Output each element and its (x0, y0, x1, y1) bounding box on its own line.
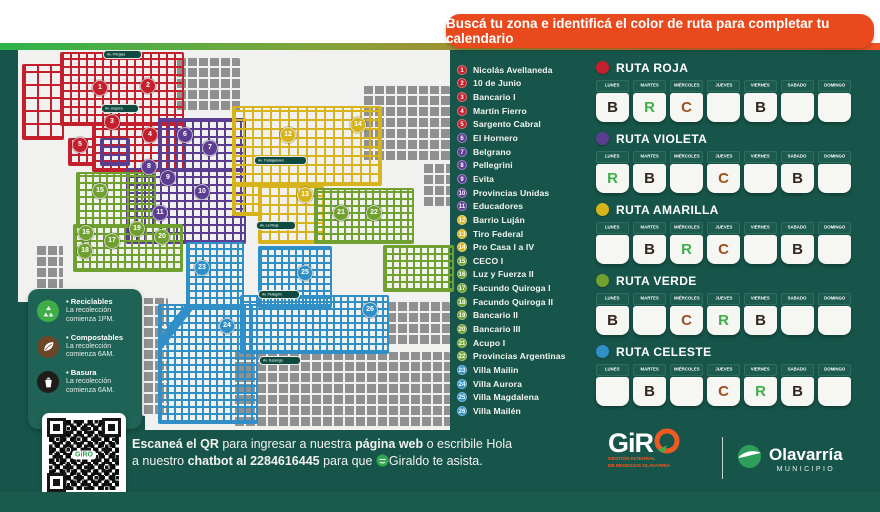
zone-number-badge: 20 (457, 324, 467, 334)
map-zone-gray (35, 245, 63, 290)
zone-name: Facundo Quiroga I (473, 283, 551, 293)
street-label: Av. Urquiza (101, 104, 139, 113)
waste-legend-item: • Compostables La recolección comienza 6… (37, 333, 134, 361)
day-header: VIERNES (744, 293, 777, 305)
map-zone-badge: 11 (152, 205, 168, 221)
zone-number-badge: 13 (457, 229, 467, 239)
day-header: MIÉRCOLES (670, 364, 703, 376)
zone-name: Martín Fierro (473, 106, 527, 116)
day-header: MARTES (633, 222, 666, 234)
zone-list-item: 24 Villa Aurora (457, 377, 566, 391)
qr-finder-icon (102, 418, 121, 437)
olavarria-logo: Olavarría MUNICIPIO (736, 443, 843, 475)
zone-name: Provincias Unidas (473, 188, 549, 198)
day-header: DOMINGO (818, 364, 851, 376)
giro-logo: GiR GESTIÓN INTEGRAL DE RESIDUOS OLAVARR… (608, 428, 712, 471)
day-letter: C (707, 164, 740, 193)
route-color-dot (596, 345, 609, 358)
day-header: VIERNES (744, 151, 777, 163)
day-header: MARTES (633, 151, 666, 163)
map-zone-badge: 19 (129, 221, 145, 237)
zone-name: Luz y Fuerza II (473, 269, 534, 279)
route-week-calendar: LUNES MARTES B MIÉRCOLES JUEVES C VIERNE… (596, 364, 864, 406)
day-cell: LUNES (596, 222, 629, 264)
flyer-root: Buscá tu zona e identificá el color de r… (0, 0, 880, 512)
zone-number-badge: 6 (457, 133, 467, 143)
day-letter (781, 306, 814, 335)
zone-number-badge: 7 (457, 147, 467, 157)
zone-name: Villa Aurora (473, 379, 522, 389)
zone-list-item: 11 Educadores (457, 199, 566, 213)
day-header: LUNES (596, 222, 629, 234)
zone-list-item: 22 Provincias Argentinas (457, 349, 566, 363)
route-title: RUTA AMARILLA (616, 203, 719, 217)
route-section: RUTA VERDE LUNES B MARTES MIÉRCOLES C JU… (596, 273, 864, 335)
zone-number-badge: 26 (457, 406, 467, 416)
map-zone-gray (175, 58, 240, 112)
day-letter (818, 93, 851, 122)
day-header: DOMINGO (818, 293, 851, 305)
zone-name: Evita (473, 174, 494, 184)
day-letter: B (596, 93, 629, 122)
zone-number-badge: 16 (457, 269, 467, 279)
street-label: Av. Trabajadores (254, 156, 307, 165)
zone-name: Villa Magdalena (473, 392, 539, 402)
map-zone-badge: 2 (140, 78, 156, 94)
route-color-dot (596, 61, 609, 74)
day-cell: MARTES R (633, 80, 666, 122)
day-letter: B (781, 235, 814, 264)
map-zone-red (60, 52, 184, 126)
day-letter: R (633, 93, 666, 122)
day-cell: JUEVES C (707, 364, 740, 406)
day-header: VIERNES (744, 222, 777, 234)
day-cell: DOMINGO (818, 80, 851, 122)
zone-list-item: 26 Villa Mailén (457, 404, 566, 418)
map-zone-gray (385, 302, 450, 346)
route-title: RUTA VERDE (616, 274, 697, 288)
map-zone-badge: 14 (350, 117, 366, 133)
map-zone-badge: 25 (297, 265, 313, 281)
day-letter (596, 235, 629, 264)
zone-number-badge: 2 (457, 78, 467, 88)
zone-list-item: 18 Facundo Quiroga II (457, 295, 566, 309)
day-cell: LUNES B (596, 80, 629, 122)
route-section: RUTA VIOLETA LUNES R MARTES B MIÉRCOLES … (596, 131, 864, 193)
waste-title: • Reciclables (66, 297, 128, 306)
street-label: Av. Ituzaingó (259, 356, 301, 365)
zone-list-item: 17 Facundo Quiroga I (457, 281, 566, 295)
day-cell: VIERNES B (744, 80, 777, 122)
street-label: Av. Pringles (103, 50, 142, 59)
zone-name: 10 de Junio (473, 78, 521, 88)
waste-desc: La recolección comienza 6AM. (66, 343, 128, 361)
map-zone-badge: 20 (154, 229, 170, 245)
day-cell: MARTES B (633, 364, 666, 406)
olavarria-sub: MUNICIPIO (769, 466, 843, 473)
qr-code: GiRO (42, 413, 126, 497)
day-cell: SÁBADO (781, 293, 814, 335)
zone-name: Sargento Cabral (473, 119, 541, 129)
map-zone-badge: 16 (78, 225, 94, 241)
day-cell: SÁBADO B (781, 151, 814, 193)
zone-number-badge: 5 (457, 119, 467, 129)
route-week-calendar: LUNES MARTES B MIÉRCOLES R JUEVES C VIER… (596, 222, 864, 264)
waste-title: • Basura (66, 368, 128, 377)
zone-number-badge: 24 (457, 379, 467, 389)
day-cell: DOMINGO (818, 151, 851, 193)
top-banner: Buscá tu zona e identificá el color de r… (446, 14, 874, 48)
day-header: MIÉRCOLES (670, 80, 703, 92)
zone-list-item: 8 Pellegrini (457, 158, 566, 172)
zone-name: Pellegrini (473, 160, 513, 170)
day-cell: JUEVES (707, 80, 740, 122)
zone-list-item: 9 Evita (457, 172, 566, 186)
waste-desc: La recolección comienza 6AM. (66, 378, 128, 396)
zone-number-badge: 4 (457, 106, 467, 116)
map-zone-blue (158, 304, 258, 424)
day-cell: VIERNES (744, 222, 777, 264)
day-letter: B (781, 377, 814, 406)
zone-list-item: 16 Luz y Fuerza II (457, 268, 566, 282)
route-title: RUTA VIOLETA (616, 132, 707, 146)
giro-o-recycle-icon (654, 428, 680, 459)
olavarria-swoosh-icon (736, 443, 763, 475)
zone-name: Villa Mailén (473, 406, 521, 416)
zone-name: Villa Mailin (473, 365, 518, 375)
zone-name: El Hornero (473, 133, 518, 143)
zone-name: Bancario II (473, 310, 518, 320)
zone-name: Acupo I (473, 338, 505, 348)
day-cell: SÁBADO B (781, 222, 814, 264)
map-zone-badge: 7 (202, 140, 218, 156)
recycle-icon (37, 300, 59, 322)
zone-list-item: 12 Barrio Luján (457, 213, 566, 227)
day-letter: C (670, 93, 703, 122)
qr-finder-icon (47, 418, 66, 437)
day-header: LUNES (596, 151, 629, 163)
day-letter: B (633, 164, 666, 193)
giro-tagline-2: DE RESIDUOS OLAVARRÍA (608, 464, 691, 470)
day-letter (818, 235, 851, 264)
zone-number-badge: 8 (457, 160, 467, 170)
giro-tagline-1: GESTIÓN INTEGRAL (608, 457, 691, 463)
day-letter (744, 235, 777, 264)
zone-number-badge: 22 (457, 351, 467, 361)
zone-name: Bancario I (473, 92, 516, 102)
zone-number-badge: 21 (457, 338, 467, 348)
map-zone-badge: 6 (177, 127, 193, 143)
zone-name: Barrio Luján (473, 215, 525, 225)
day-header: DOMINGO (818, 80, 851, 92)
map-zone-blue (186, 242, 244, 308)
map-zone-yellow (232, 182, 262, 216)
waste-legend-panel: • Reciclables La recolección comienza 1P… (28, 289, 142, 429)
zone-number-badge: 17 (457, 283, 467, 293)
zone-number-badge: 3 (457, 92, 467, 102)
zone-name: Tiro Federal (473, 229, 523, 239)
day-header: JUEVES (707, 151, 740, 163)
day-header: LUNES (596, 80, 629, 92)
day-cell: VIERNES B (744, 293, 777, 335)
map-zone-green (76, 172, 156, 228)
zones-legend: 1 Nicolás Avellaneda 2 10 de Junio 3 Ban… (457, 63, 566, 418)
day-cell: MIÉRCOLES R (670, 222, 703, 264)
day-cell: MIÉRCOLES C (670, 80, 703, 122)
olavarria-name: Olavarría (769, 445, 843, 465)
day-cell: VIERNES R (744, 364, 777, 406)
zone-number-badge: 15 (457, 256, 467, 266)
day-header: DOMINGO (818, 151, 851, 163)
zone-number-badge: 11 (457, 201, 467, 211)
zone-list-item: 14 Pro Casa I a IV (457, 240, 566, 254)
zone-number-badge: 9 (457, 174, 467, 184)
day-header: JUEVES (707, 364, 740, 376)
day-header: LUNES (596, 293, 629, 305)
zone-list-item: 21 Acupo I (457, 336, 566, 350)
zone-list-item: 20 Bancario III (457, 322, 566, 336)
day-letter (818, 164, 851, 193)
zone-list-item: 10 Provincias Unidas (457, 186, 566, 200)
day-cell: DOMINGO (818, 222, 851, 264)
map-zone-badge: 17 (104, 233, 120, 249)
qr-finder-icon (47, 473, 66, 492)
map-zone-green (314, 188, 414, 244)
day-letter (670, 164, 703, 193)
day-cell: MARTES B (633, 151, 666, 193)
map-zone-badge: 12 (280, 127, 296, 143)
day-header: MIÉRCOLES (670, 293, 703, 305)
zone-name: Provincias Argentinas (473, 351, 566, 361)
day-cell: VIERNES (744, 151, 777, 193)
day-letter: R (744, 377, 777, 406)
route-section: RUTA CELESTE LUNES MARTES B MIÉRCOLES JU… (596, 344, 864, 406)
day-header: DOMINGO (818, 222, 851, 234)
day-header: JUEVES (707, 222, 740, 234)
day-header: MARTES (633, 364, 666, 376)
map-zone-badge: 8 (141, 159, 157, 175)
zone-list-item: 6 El Hornero (457, 131, 566, 145)
map-zone-badge: 23 (194, 260, 210, 276)
diagonal-avenue (158, 304, 198, 405)
zone-name: Pro Casa I a IV (473, 242, 534, 252)
zone-name: Belgrano (473, 147, 511, 157)
footer-divider (722, 437, 723, 479)
zone-number-badge: 25 (457, 392, 467, 402)
map-zone-badge: 18 (77, 243, 93, 259)
day-cell: LUNES R (596, 151, 629, 193)
map-zone-badge: 3 (104, 114, 120, 130)
day-cell: DOMINGO (818, 364, 851, 406)
waste-legend-item: • Basura La recolección comienza 6AM. (37, 368, 134, 396)
trash-bag-icon (37, 371, 59, 393)
map-zone-badge: 5 (72, 137, 88, 153)
zone-number-badge: 14 (457, 242, 467, 252)
map-zone-badge: 13 (297, 187, 313, 203)
day-cell: LUNES B (596, 293, 629, 335)
zone-list-item: 1 Nicolás Avellaneda (457, 63, 566, 77)
day-letter: R (670, 235, 703, 264)
zone-list-item: 2 10 de Junio (457, 77, 566, 91)
day-cell: JUEVES C (707, 222, 740, 264)
route-week-calendar: LUNES B MARTES MIÉRCOLES C JUEVES R VIER… (596, 293, 864, 335)
day-header: MIÉRCOLES (670, 222, 703, 234)
waste-desc: La recolección comienza 1PM. (66, 307, 128, 325)
map-zone-badge: 9 (160, 170, 176, 186)
street-label: Av. La Rioja (256, 221, 296, 230)
day-header: SÁBADO (781, 80, 814, 92)
route-section: RUTA ROJA LUNES B MARTES R MIÉRCOLES C J… (596, 60, 864, 122)
day-cell: MIÉRCOLES (670, 364, 703, 406)
route-week-calendar: LUNES R MARTES B MIÉRCOLES JUEVES C VIER… (596, 151, 864, 193)
zone-number-badge: 19 (457, 310, 467, 320)
zone-name: Educadores (473, 201, 523, 211)
day-letter (633, 306, 666, 335)
zone-name: Facundo Quiroga II (473, 297, 553, 307)
day-header: MARTES (633, 80, 666, 92)
day-header: LUNES (596, 364, 629, 376)
day-header: SÁBADO (781, 364, 814, 376)
map-zone-badge: 24 (219, 318, 235, 334)
day-letter: R (596, 164, 629, 193)
map-zone-badge: 1 (92, 80, 108, 96)
zone-list-item: 5 Sargento Cabral (457, 118, 566, 132)
map-zone-violet (100, 138, 130, 166)
day-letter: C (670, 306, 703, 335)
zone-number-badge: 10 (457, 188, 467, 198)
day-cell: MIÉRCOLES C (670, 293, 703, 335)
zone-number-badge: 1 (457, 65, 467, 75)
zone-list-item: 23 Villa Mailin (457, 363, 566, 377)
map-zone-green (383, 245, 454, 292)
route-week-calendar: LUNES B MARTES R MIÉRCOLES C JUEVES VIER… (596, 80, 864, 122)
day-header: VIERNES (744, 80, 777, 92)
day-letter: B (633, 377, 666, 406)
giro-wordmark: GiR (608, 428, 653, 459)
route-section: RUTA AMARILLA LUNES MARTES B MIÉRCOLES R… (596, 202, 864, 264)
waste-legend-item: • Reciclables La recolección comienza 1P… (37, 297, 134, 325)
footer-note: Escaneá el QR para ingresar a nuestra pá… (132, 436, 572, 470)
day-cell: SÁBADO B (781, 364, 814, 406)
map-zone-badge: 22 (366, 205, 382, 221)
zone-name: CECO I (473, 256, 503, 266)
day-header: SÁBADO (781, 293, 814, 305)
day-header: VIERNES (744, 364, 777, 376)
zone-number-badge: 18 (457, 297, 467, 307)
map-zone-gray (422, 162, 450, 208)
day-letter: B (744, 93, 777, 122)
zone-name: Nicolás Avellaneda (473, 65, 553, 75)
route-color-dot (596, 132, 609, 145)
day-header: SÁBADO (781, 222, 814, 234)
day-cell: JUEVES C (707, 151, 740, 193)
zone-number-badge: 23 (457, 365, 467, 375)
zone-name: Bancario III (473, 324, 521, 334)
day-cell: DOMINGO (818, 293, 851, 335)
day-header: JUEVES (707, 80, 740, 92)
zone-list-item: 3 Bancario I (457, 90, 566, 104)
zone-list-item: 7 Belgrano (457, 145, 566, 159)
zone-list-item: 13 Tiro Federal (457, 227, 566, 241)
zone-number-badge: 12 (457, 215, 467, 225)
day-cell: MIÉRCOLES (670, 151, 703, 193)
day-letter: B (596, 306, 629, 335)
map-zone-badge: 15 (92, 183, 108, 199)
zone-list-item: 4 Martín Fierro (457, 104, 566, 118)
waste-title: • Compostables (66, 333, 128, 342)
map-zone-red (22, 64, 64, 140)
day-letter: B (744, 306, 777, 335)
map-zone-badge: 4 (142, 127, 158, 143)
day-cell: SÁBADO (781, 80, 814, 122)
day-cell: MARTES B (633, 222, 666, 264)
day-letter: C (707, 235, 740, 264)
footer-band (0, 492, 880, 512)
day-cell: MARTES (633, 293, 666, 335)
day-letter (818, 377, 851, 406)
map-zone-badge: 26 (362, 302, 378, 318)
route-title: RUTA ROJA (616, 61, 688, 75)
day-letter: R (707, 306, 740, 335)
day-header: MIÉRCOLES (670, 151, 703, 163)
street-label: Av. Pellegrini (258, 290, 300, 299)
routes-panel: RUTA ROJA LUNES B MARTES R MIÉRCOLES C J… (596, 60, 864, 415)
zone-list-item: 25 Villa Magdalena (457, 390, 566, 404)
qr-center-logo: GiRO (72, 451, 96, 460)
day-header: SÁBADO (781, 151, 814, 163)
day-letter (707, 93, 740, 122)
day-letter (818, 306, 851, 335)
day-cell: JUEVES R (707, 293, 740, 335)
day-letter: C (707, 377, 740, 406)
day-cell: LUNES (596, 364, 629, 406)
day-letter: B (633, 235, 666, 264)
route-title: RUTA CELESTE (616, 345, 711, 359)
route-color-dot (596, 203, 609, 216)
day-header: MARTES (633, 293, 666, 305)
day-letter (744, 164, 777, 193)
banner-text: Buscá tu zona e identificá el color de r… (446, 16, 874, 46)
map-zone-badge: 10 (194, 184, 210, 200)
zone-list-item: 15 CECO I (457, 254, 566, 268)
leaf-icon (37, 336, 59, 358)
map-zone-badge: 21 (333, 205, 349, 221)
zone-list-item: 19 Bancario II (457, 309, 566, 323)
day-letter: B (781, 164, 814, 193)
day-header: JUEVES (707, 293, 740, 305)
day-letter (670, 377, 703, 406)
route-color-dot (596, 274, 609, 287)
day-letter (781, 93, 814, 122)
day-letter (596, 377, 629, 406)
